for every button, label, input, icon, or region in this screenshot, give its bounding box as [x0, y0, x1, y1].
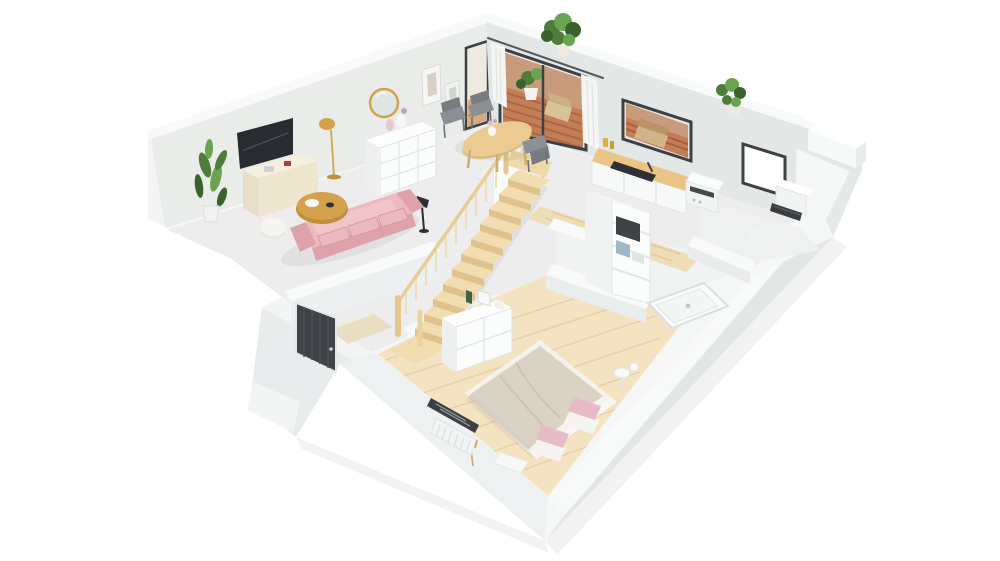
coffee-table-bowl	[326, 203, 334, 208]
washer-knob-1	[693, 199, 696, 202]
plant-center-leaf-5	[563, 34, 575, 46]
floorplan-render-stage	[0, 0, 1000, 561]
coffee-table-top	[297, 192, 347, 220]
picture-frame-large-art	[427, 72, 437, 97]
pouf-top	[260, 218, 286, 236]
plant-right-leaf-5	[731, 97, 741, 107]
dresser-white-vase	[396, 114, 406, 128]
terrace-plant-leaf-2	[531, 68, 543, 80]
dresser-pink-vase	[386, 119, 394, 131]
counter-bottle-2	[610, 141, 614, 149]
media-unit-red-box	[284, 161, 291, 166]
counter-bottle-1	[603, 138, 608, 147]
gold-lamp-base	[327, 175, 341, 180]
plant-center-leaf-4	[551, 31, 565, 45]
plant-right-leaf-4	[722, 95, 732, 105]
corner-plant-pot	[203, 206, 219, 222]
front-door-handle	[329, 347, 333, 351]
bedside-ball-lamp	[630, 363, 638, 371]
bookshelf-left-face	[585, 190, 612, 294]
white-pouf	[260, 218, 286, 238]
terrace-planter	[524, 88, 538, 100]
bedroom-dresser-bottle	[466, 290, 472, 304]
dining-flower-1	[488, 121, 493, 126]
dining-vase	[488, 126, 496, 136]
dresser-flower-sprig	[401, 108, 407, 114]
coffee-table-tray	[305, 199, 319, 207]
black-lamp-base	[419, 229, 429, 233]
washer-knob-2	[699, 201, 702, 204]
gold-lamp-shade	[319, 118, 335, 130]
plant-center-leaf-6	[541, 30, 553, 42]
shower-drain	[686, 304, 691, 309]
terrace-plant-leaf-3	[516, 79, 526, 89]
floorplan-3d-svg	[0, 0, 1000, 561]
dining-flower-2	[493, 119, 497, 123]
media-unit-gray-box	[264, 166, 274, 172]
gold-coffee-table	[296, 192, 348, 224]
bedside-table-top	[614, 368, 630, 378]
curtain-right	[581, 74, 599, 150]
plant-right-pot	[726, 107, 740, 116]
curtain-left	[491, 42, 507, 108]
plant-center-pot	[556, 46, 570, 57]
